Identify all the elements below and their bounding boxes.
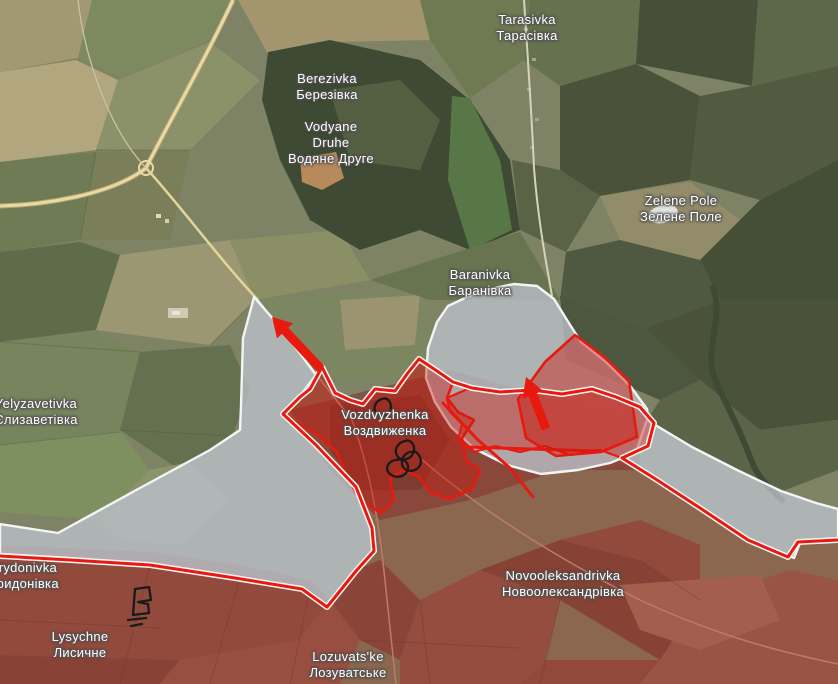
map-canvas[interactable]: TarasivkaТарасівкаBerezivkaБерезівкаVody… [0, 0, 838, 684]
map-svg [0, 0, 838, 684]
